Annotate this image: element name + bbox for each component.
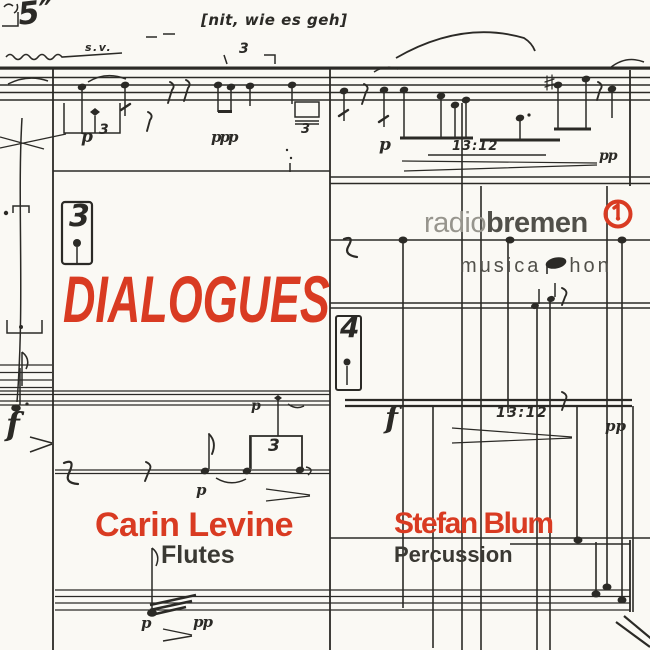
tuplet-number: 3 xyxy=(99,123,109,137)
radio-bremen-logo-bold: bremen xyxy=(486,207,588,239)
dynamic-mark-p-bottom: p xyxy=(141,616,152,631)
dynamic-mark-p-mid-lower: p xyxy=(196,483,207,498)
time-code-right: 13:12 xyxy=(496,406,548,420)
dynamic-mark-f-right: f xyxy=(385,404,398,434)
meter-box-number-left: 3 xyxy=(69,202,90,232)
inscription-mark: [nit, wie es geh] xyxy=(201,13,347,28)
percussion-stem-lines xyxy=(403,103,633,650)
album-title: DIALOGUES xyxy=(63,266,330,332)
dynamic-mark-p-right: p xyxy=(379,137,391,154)
dynamic-mark-p-mid-upper: p xyxy=(251,399,261,413)
tuplet-number-top: 3 xyxy=(239,42,249,56)
dynamic-mark-pp-right: pp xyxy=(605,419,626,434)
duration-mark: 5″ xyxy=(16,0,54,31)
notehead-icon xyxy=(542,255,568,275)
staff-lines xyxy=(0,67,650,650)
dynamic-mark-p: p xyxy=(81,129,93,146)
tuplet-number-mid: 3 xyxy=(268,438,280,455)
performer-left-instrument: Flutes xyxy=(161,543,235,568)
dynamic-mark-f-left: f xyxy=(6,408,20,440)
album-cover: 5″ s.v. [nit, wie es geh] 3 p 3 ppp 3 13… xyxy=(0,0,650,650)
dynamic-mark-pp-bottom: pp xyxy=(193,615,212,630)
musicaphon-logo-left: musica xyxy=(460,256,541,276)
musicaphon-logo-right: hon xyxy=(569,256,611,276)
performer-right-instrument: Percussion xyxy=(394,544,513,566)
tuplet-number-small: 3 xyxy=(301,123,310,136)
radio-bremen-logo: radiobremen xyxy=(424,209,588,238)
musicaphon-logo: musica hon xyxy=(460,255,612,277)
dynamic-mark-ppp: ppp xyxy=(211,130,236,145)
performer-right-name: Stefan Blum xyxy=(394,509,553,539)
dynamic-mark-pp-top-right: pp xyxy=(599,149,617,163)
radio-bremen-logo-light: radio xyxy=(424,207,486,239)
sv-mark: s.v. xyxy=(85,42,112,53)
radio-bremen-ring-icon xyxy=(601,197,635,231)
meter-box-number-right: 4 xyxy=(340,314,359,342)
performer-left-name: Carin Levine xyxy=(95,508,293,542)
time-code-top: 13:12 xyxy=(452,140,498,153)
